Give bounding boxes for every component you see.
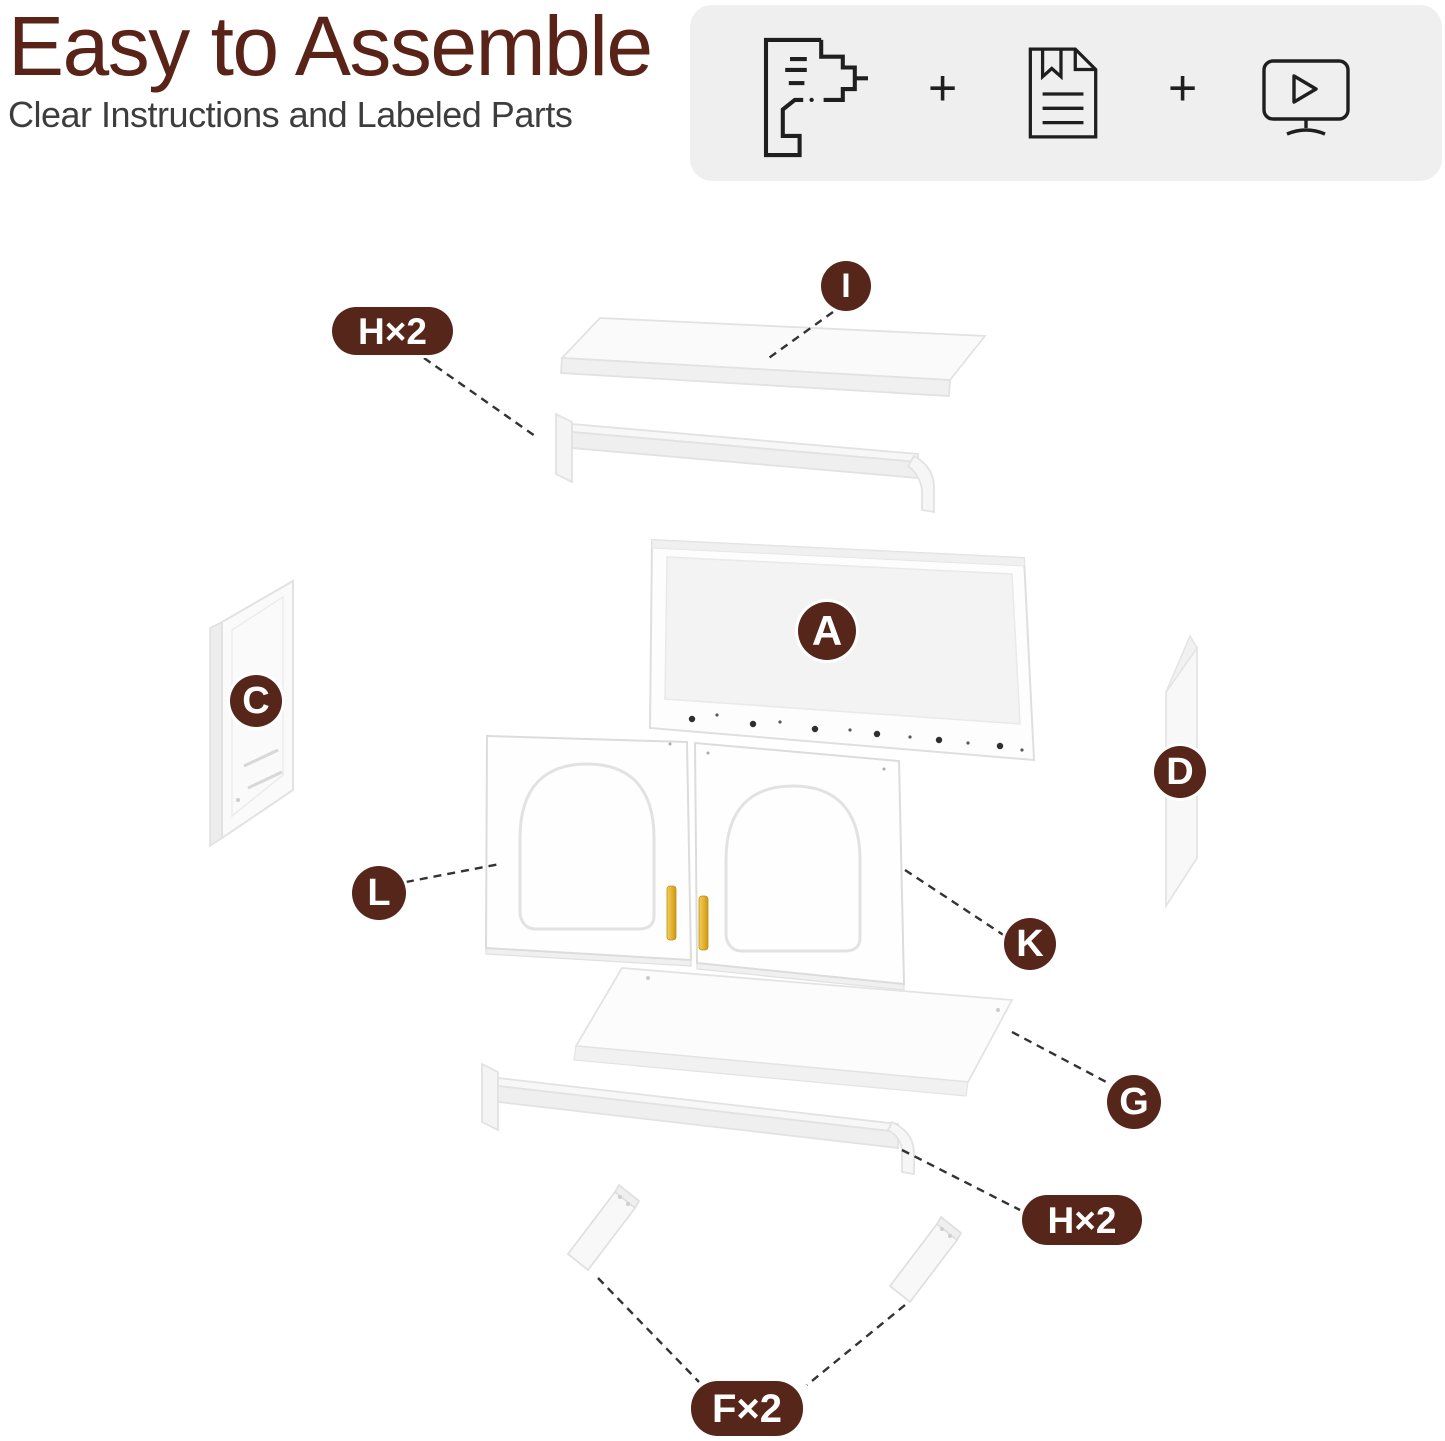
part-hanging-rail-top-h	[556, 414, 934, 512]
part-label-d: D	[1154, 746, 1206, 798]
part-label-g: G	[1107, 1075, 1161, 1129]
part-label-k: K	[1004, 918, 1056, 970]
leader-k	[905, 870, 1005, 936]
part-label-h2-top: H×2	[332, 307, 453, 355]
door-handle	[667, 886, 676, 940]
part-label-c: C	[230, 675, 282, 727]
leader-h-bottom	[902, 1150, 1020, 1210]
part-label-i: I	[821, 261, 871, 311]
part-door-left-l	[486, 736, 691, 966]
part-label-h2-bottom: H×2	[1022, 1195, 1142, 1245]
door-handle	[699, 896, 708, 950]
part-bottom-shelf-g	[574, 968, 1012, 1096]
part-label-l: L	[352, 866, 406, 920]
part-door-right-k	[695, 743, 904, 990]
part-label-a: A	[798, 602, 856, 660]
part-top-shelf-i	[561, 318, 985, 396]
part-bracket-f-right	[890, 1217, 961, 1302]
leader-h-top	[424, 358, 535, 436]
leader-f-right	[807, 1305, 905, 1385]
leader-g	[1012, 1032, 1110, 1084]
exploded-diagram: H×2 I A C D L K G H×2 F×2	[0, 0, 1445, 1441]
part-bracket-f-left	[568, 1185, 639, 1270]
part-label-f2: F×2	[691, 1381, 803, 1436]
leader-f-left	[598, 1278, 699, 1382]
furniture-parts	[0, 0, 1445, 1441]
